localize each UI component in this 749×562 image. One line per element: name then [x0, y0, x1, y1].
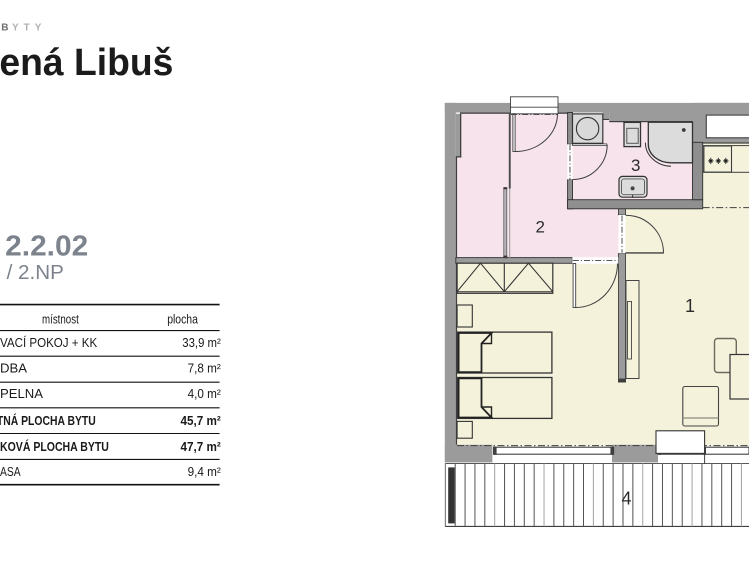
- svg-text:4: 4: [622, 489, 632, 509]
- svg-text:33,9 m²: 33,9 m²: [182, 335, 221, 350]
- svg-text:CHODBA: CHODBA: [0, 360, 27, 375]
- svg-text:plocha: plocha: [167, 311, 198, 326]
- svg-text:45,7 m²: 45,7 m²: [181, 413, 222, 428]
- svg-text:1: 1: [685, 296, 695, 316]
- svg-text:/ 2.NP: / 2.NP: [7, 262, 64, 284]
- svg-text:UŽITNÁ PLOCHA BYTU: UŽITNÁ PLOCHA BYTU: [0, 413, 96, 428]
- svg-text:KOUPELNA: KOUPELNA: [0, 386, 43, 401]
- svg-text:7,8 m²: 7,8 m²: [188, 360, 222, 375]
- svg-text:4,0 m²: 4,0 m²: [188, 386, 222, 401]
- svg-text:2: 2: [536, 218, 545, 237]
- svg-text:YTY: YTY: [12, 23, 42, 34]
- svg-text:47,7 m²: 47,7 m²: [181, 439, 222, 454]
- svg-text:místnost: místnost: [42, 311, 79, 326]
- svg-text:TERASA: TERASA: [0, 464, 21, 479]
- svg-text:9,4 m²: 9,4 m²: [188, 464, 222, 479]
- svg-text:OBÝVACÍ POKOJ + KK: OBÝVACÍ POKOJ + KK: [0, 335, 97, 350]
- svg-text:B: B: [1, 23, 8, 34]
- svg-text:2.2.02: 2.2.02: [5, 231, 88, 263]
- svg-text:3: 3: [631, 156, 640, 175]
- svg-text:CELKOVÁ PLOCHA BYTU: CELKOVÁ PLOCHA BYTU: [0, 439, 109, 454]
- svg-text:ená Libuš: ená Libuš: [0, 42, 173, 84]
